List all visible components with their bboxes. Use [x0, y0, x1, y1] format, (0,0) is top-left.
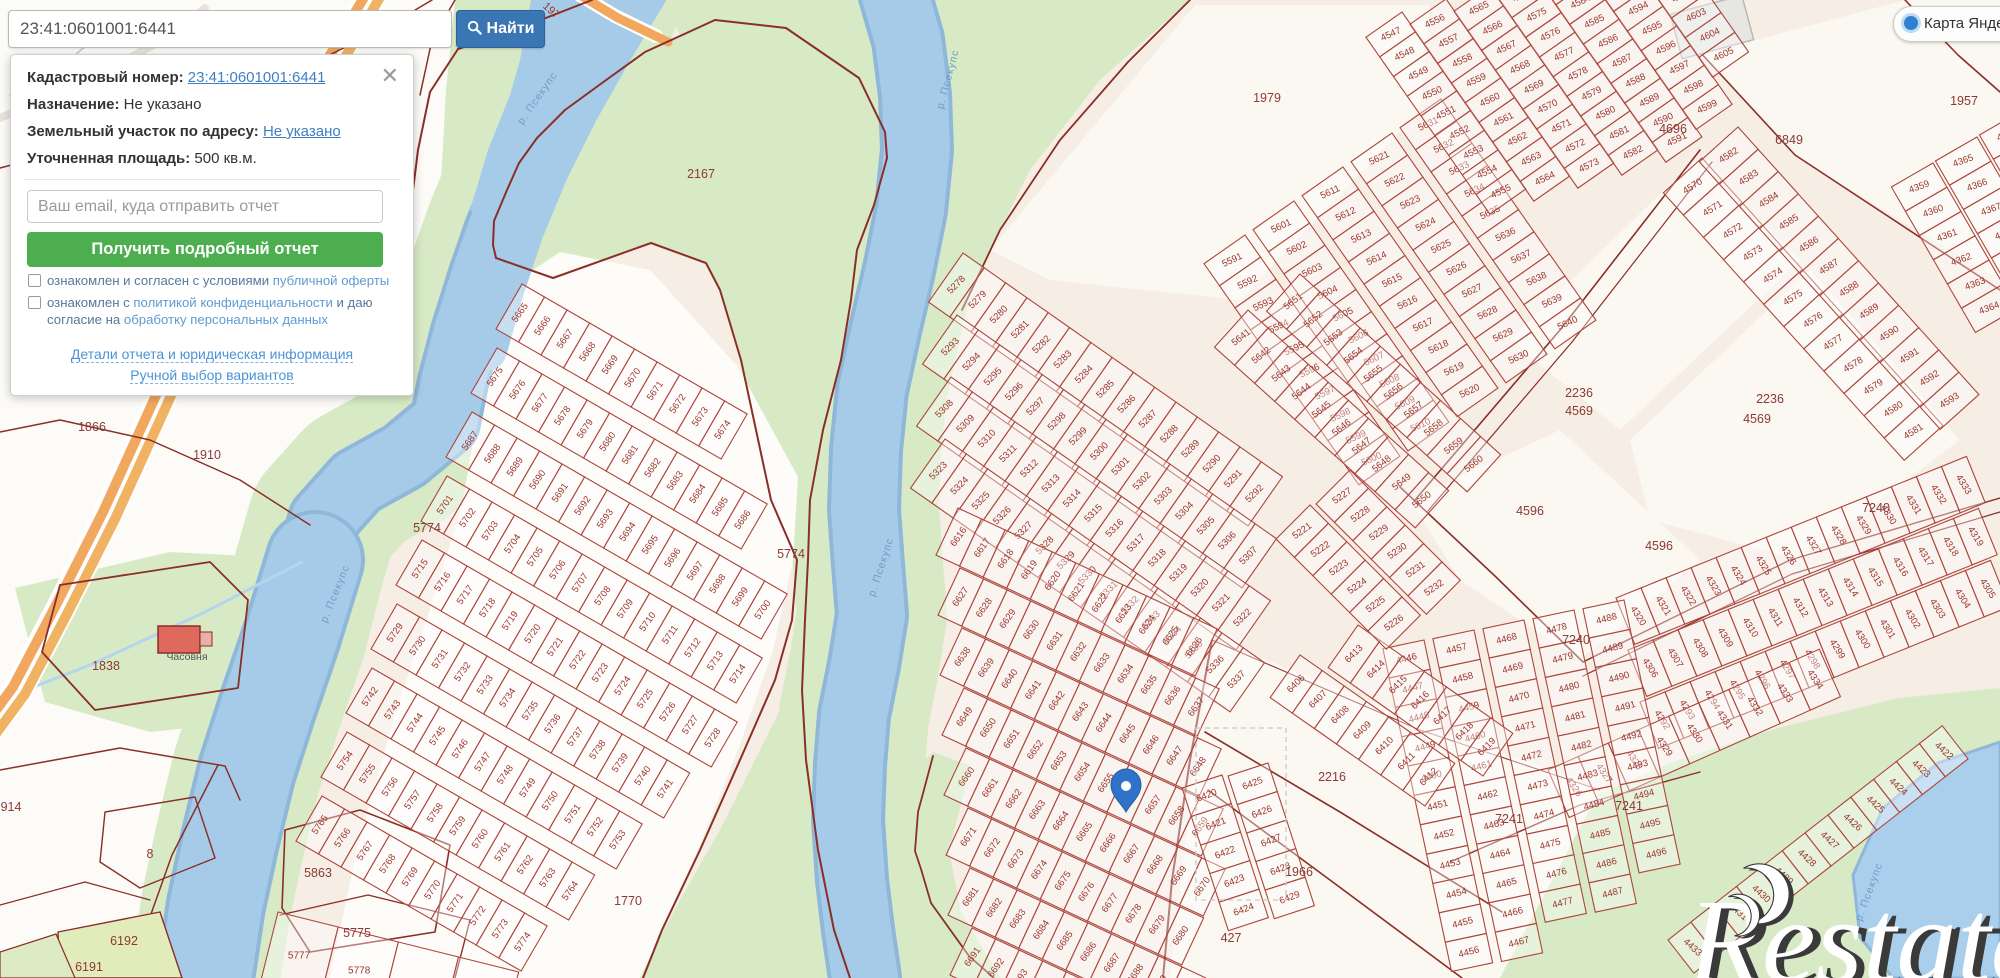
svg-text:6191: 6191: [75, 960, 103, 974]
svg-text:7240: 7240: [1862, 501, 1890, 515]
svg-text:2167: 2167: [687, 167, 715, 181]
svg-text:914: 914: [1, 800, 22, 814]
svg-text:5777: 5777: [288, 950, 311, 961]
svg-text:7240: 7240: [1562, 633, 1590, 647]
svg-text:5863: 5863: [304, 866, 332, 880]
svg-text:7241: 7241: [1495, 812, 1523, 826]
svg-text:Часовня: Часовня: [166, 651, 207, 663]
svg-text:2236: 2236: [1756, 392, 1784, 406]
svg-text:7241: 7241: [1615, 799, 1643, 813]
svg-text:1979: 1979: [1253, 91, 1281, 105]
svg-text:5774: 5774: [413, 521, 441, 535]
svg-text:1770: 1770: [614, 894, 642, 908]
svg-text:1838: 1838: [92, 659, 120, 673]
svg-text:1966: 1966: [1285, 865, 1313, 879]
svg-text:1957: 1957: [1950, 94, 1978, 108]
svg-text:4596: 4596: [1516, 504, 1544, 518]
svg-text:5778: 5778: [348, 965, 371, 976]
svg-text:2236: 2236: [1565, 386, 1593, 400]
svg-text:4596: 4596: [1645, 539, 1673, 553]
svg-text:2216: 2216: [1318, 770, 1346, 784]
svg-text:6849: 6849: [1775, 133, 1803, 147]
svg-text:1910: 1910: [193, 448, 221, 462]
svg-text:5775: 5775: [343, 926, 371, 940]
svg-text:1866: 1866: [78, 420, 106, 434]
svg-text:427: 427: [1221, 931, 1242, 945]
svg-text:5774: 5774: [777, 547, 805, 561]
svg-text:4569: 4569: [1743, 412, 1771, 426]
svg-text:6192: 6192: [110, 934, 138, 948]
svg-text:4569: 4569: [1565, 404, 1593, 418]
svg-text:4696: 4696: [1659, 122, 1687, 136]
svg-text:8: 8: [147, 847, 154, 861]
